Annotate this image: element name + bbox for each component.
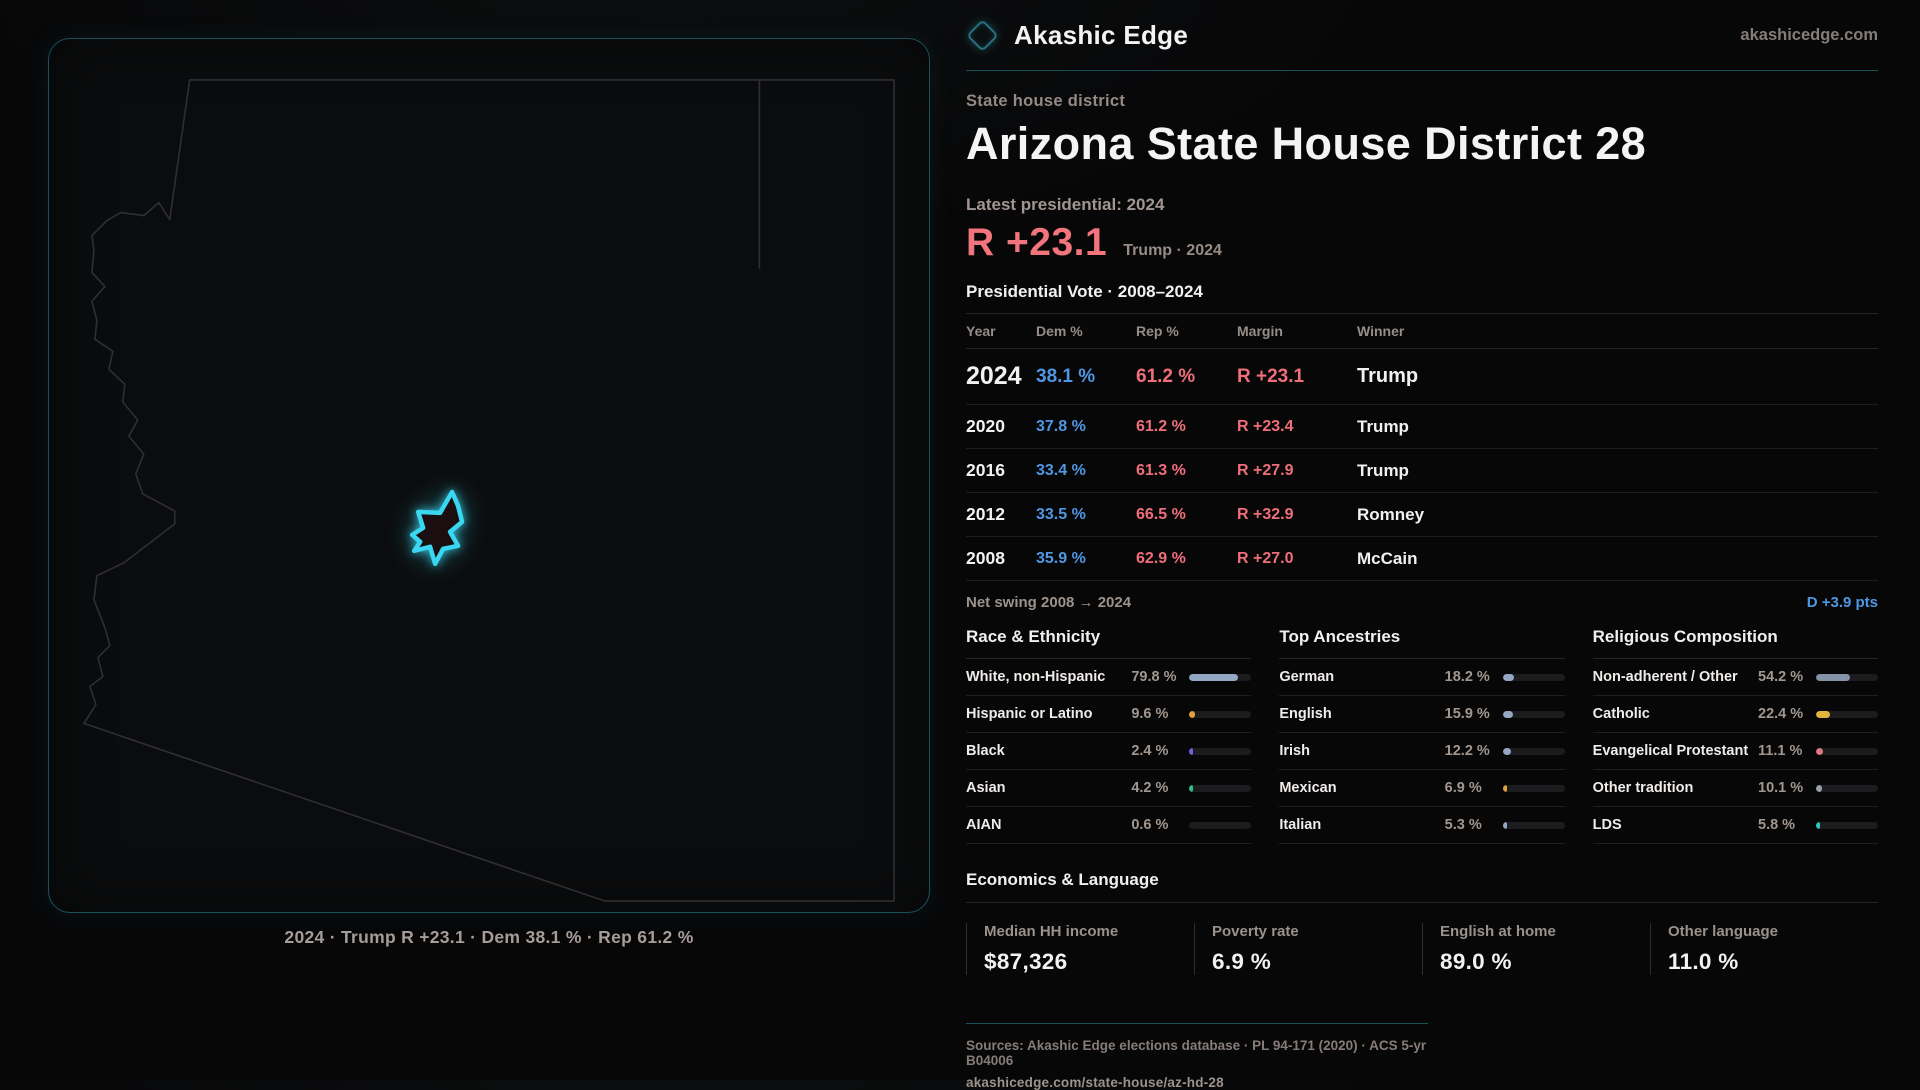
item-value: 9.6 %: [1131, 706, 1189, 722]
item-label: Mexican: [1279, 779, 1444, 798]
stat-bar-fill: [1503, 674, 1514, 681]
item-label: White, non-Hispanic: [966, 668, 1131, 687]
cell-margin: R +27.9: [1237, 462, 1357, 480]
stat-bar: [1503, 785, 1565, 792]
stat-value: 11.0 %: [1668, 949, 1878, 975]
item-label: Asian: [966, 779, 1131, 798]
section-title: Race & Ethnicity: [966, 627, 1251, 659]
col-header-year: Year: [966, 323, 1036, 339]
stat-label: Median HH income: [984, 923, 1194, 940]
list-item: Other tradition 10.1 %: [1593, 770, 1878, 807]
district-report: Akashic Edge akashicedge.com State house…: [966, 0, 1878, 1090]
stat-bar-fill: [1816, 785, 1822, 792]
table-row: 2016 33.4 % 61.3 % R +27.9 Trump: [966, 449, 1878, 493]
list-item: AIAN 0.6 %: [966, 807, 1251, 844]
brand-name: Akashic Edge: [1014, 20, 1188, 51]
item-label: AIAN: [966, 816, 1131, 835]
stat-value: $87,326: [984, 949, 1194, 975]
item-label: Other tradition: [1593, 779, 1758, 798]
stat-bar: [1189, 674, 1251, 681]
item-label: Catholic: [1593, 705, 1758, 724]
section-title: Top Ancestries: [1279, 627, 1564, 659]
cell-dem: 35.9 %: [1036, 550, 1136, 568]
economics-title: Economics & Language: [966, 870, 1878, 903]
religion-column: Religious Composition Non-adherent / Oth…: [1593, 627, 1878, 844]
list-item: Italian 5.3 %: [1279, 807, 1564, 844]
arizona-map: [49, 39, 929, 912]
item-value: 54.2 %: [1758, 669, 1816, 685]
list-item: LDS 5.8 %: [1593, 807, 1878, 844]
list-item: Hispanic or Latino 9.6 %: [966, 696, 1251, 733]
stat-bar-fill: [1503, 711, 1513, 718]
item-label: English: [1279, 705, 1444, 724]
race-ethnicity-column: Race & Ethnicity White, non-Hispanic 79.…: [966, 627, 1251, 844]
item-value: 10.1 %: [1758, 780, 1816, 796]
stat-poverty-rate: Poverty rate 6.9 %: [1194, 923, 1422, 975]
col-header-winner: Winner: [1357, 323, 1878, 339]
item-label: Black: [966, 742, 1131, 761]
stat-bar: [1503, 748, 1565, 755]
cell-dem: 33.5 %: [1036, 506, 1136, 524]
cell-year: 2024: [966, 362, 1036, 391]
list-item: Asian 4.2 %: [966, 770, 1251, 807]
list-item: Mexican 6.9 %: [1279, 770, 1564, 807]
kicker-label: State house district: [966, 92, 1878, 111]
list-item: German 18.2 %: [1279, 659, 1564, 696]
stat-median-income: Median HH income $87,326: [966, 923, 1194, 975]
cell-rep: 61.2 %: [1136, 418, 1237, 436]
list-item: Evangelical Protestant 11.1 %: [1593, 733, 1878, 770]
item-label: LDS: [1593, 816, 1758, 835]
stat-bar: [1189, 748, 1251, 755]
cell-rep: 61.3 %: [1136, 462, 1237, 480]
table-title: Presidential Vote · 2008–2024: [966, 282, 1878, 302]
list-item: Black 2.4 %: [966, 733, 1251, 770]
list-item: Irish 12.2 %: [1279, 733, 1564, 770]
district-28-shape[interactable]: [412, 492, 462, 564]
table-row: 2012 33.5 % 66.5 % R +32.9 Romney: [966, 493, 1878, 537]
ancestries-column: Top Ancestries German 18.2 % English 15.…: [1279, 627, 1564, 844]
item-value: 22.4 %: [1758, 706, 1816, 722]
stat-bar: [1816, 822, 1878, 829]
headline-margin: R +23.1 Trump · 2024: [966, 221, 1878, 265]
stat-bar-fill: [1816, 822, 1820, 829]
item-label: Hispanic or Latino: [966, 705, 1131, 724]
table-row: 2020 37.8 % 61.2 % R +23.4 Trump: [966, 405, 1878, 449]
table-row: 2024 38.1 % 61.2 % R +23.1 Trump: [966, 349, 1878, 405]
cell-margin: R +27.0: [1237, 550, 1357, 568]
stat-bar: [1816, 674, 1878, 681]
stat-bar: [1503, 822, 1565, 829]
stat-value: 89.0 %: [1440, 949, 1650, 975]
item-value: 15.9 %: [1445, 706, 1503, 722]
col-header-margin: Margin: [1237, 323, 1357, 339]
col-header-rep: Rep %: [1136, 323, 1237, 339]
margin-value: R +23.1: [966, 221, 1107, 265]
demographics-section: Race & Ethnicity White, non-Hispanic 79.…: [966, 627, 1878, 844]
brand-domain-link[interactable]: akashicedge.com: [1740, 26, 1878, 45]
cell-year: 2020: [966, 416, 1036, 437]
cell-margin: R +32.9: [1237, 506, 1357, 524]
item-label: Evangelical Protestant: [1593, 742, 1758, 761]
col-header-dem: Dem %: [1036, 323, 1136, 339]
item-value: 79.8 %: [1131, 669, 1189, 685]
cell-rep: 62.9 %: [1136, 550, 1237, 568]
district-map-panel: [48, 38, 930, 913]
cell-rep: 61.2 %: [1136, 366, 1237, 388]
item-value: 18.2 %: [1445, 669, 1503, 685]
cell-year: 2008: [966, 548, 1036, 569]
stat-bar: [1189, 785, 1251, 792]
net-swing-label: Net swing 2008 → 2024: [966, 594, 1131, 611]
stat-bar-fill: [1503, 748, 1511, 755]
cell-dem: 38.1 %: [1036, 366, 1136, 388]
stat-bar-fill: [1816, 674, 1850, 681]
table-header-row: Year Dem % Rep % Margin Winner: [966, 313, 1878, 349]
item-value: 2.4 %: [1131, 743, 1189, 759]
stat-bar: [1189, 711, 1251, 718]
stat-label: English at home: [1440, 923, 1650, 940]
stat-bar-fill: [1503, 822, 1507, 829]
item-value: 5.3 %: [1445, 817, 1503, 833]
cell-dem: 37.8 %: [1036, 418, 1136, 436]
item-value: 6.9 %: [1445, 780, 1503, 796]
stat-bar-fill: [1189, 711, 1195, 718]
item-label: German: [1279, 668, 1444, 687]
item-value: 5.8 %: [1758, 817, 1816, 833]
cell-winner: Trump: [1357, 417, 1878, 437]
item-value: 4.2 %: [1131, 780, 1189, 796]
stat-bar-fill: [1816, 748, 1823, 755]
table-row: 2008 35.9 % 62.9 % R +27.0 McCain: [966, 537, 1878, 581]
net-swing-value: D +3.9 pts: [1807, 594, 1878, 611]
stat-bar-fill: [1189, 748, 1193, 755]
cell-year: 2012: [966, 504, 1036, 525]
stat-bar-fill: [1189, 785, 1193, 792]
cell-rep: 66.5 %: [1136, 506, 1237, 524]
brand-header: Akashic Edge akashicedge.com: [966, 0, 1878, 71]
sources-text: Sources: Akashic Edge elections database…: [966, 1038, 1428, 1068]
item-value: 12.2 %: [1445, 743, 1503, 759]
map-caption: 2024 · Trump R +23.1 · Dem 38.1 % · Rep …: [48, 927, 930, 948]
list-item: Non-adherent / Other 54.2 %: [1593, 659, 1878, 696]
stat-bar-fill: [1503, 785, 1507, 792]
page-title: Arizona State House District 28: [966, 118, 1878, 170]
item-label: Non-adherent / Other: [1593, 668, 1758, 687]
cell-winner: McCain: [1357, 549, 1878, 569]
cell-winner: Trump: [1357, 365, 1878, 388]
stat-bar: [1503, 674, 1565, 681]
item-label: Irish: [1279, 742, 1444, 761]
cell-dem: 33.4 %: [1036, 462, 1136, 480]
list-item: Catholic 22.4 %: [1593, 696, 1878, 733]
item-value: 11.1 %: [1758, 743, 1816, 759]
stat-bar: [1816, 785, 1878, 792]
net-swing-row: Net swing 2008 → 2024 D +3.9 pts: [966, 581, 1878, 611]
cell-margin: R +23.4: [1237, 418, 1357, 436]
item-label: Italian: [1279, 816, 1444, 835]
stat-other-language: Other language 11.0 %: [1650, 923, 1878, 975]
stat-label: Poverty rate: [1212, 923, 1422, 940]
list-item: White, non-Hispanic 79.8 %: [966, 659, 1251, 696]
margin-note: Trump · 2024: [1123, 242, 1222, 260]
list-item: English 15.9 %: [1279, 696, 1564, 733]
section-title: Religious Composition: [1593, 627, 1878, 659]
cell-margin: R +23.1: [1237, 366, 1357, 388]
stat-value: 6.9 %: [1212, 949, 1422, 975]
stat-bar: [1189, 822, 1251, 829]
stat-bar: [1503, 711, 1565, 718]
stat-bar-fill: [1816, 711, 1830, 718]
diamond-icon: [966, 19, 999, 52]
item-value: 0.6 %: [1131, 817, 1189, 833]
stat-bar-fill: [1189, 674, 1238, 681]
arizona-state-outline: [84, 80, 894, 901]
stat-english-at-home: English at home 89.0 %: [1422, 923, 1650, 975]
latest-presidential-label: Latest presidential: 2024: [966, 195, 1878, 215]
economics-stats: Median HH income $87,326 Poverty rate 6.…: [966, 923, 1878, 975]
stat-bar: [1816, 711, 1878, 718]
cell-year: 2016: [966, 460, 1036, 481]
cell-winner: Trump: [1357, 461, 1878, 481]
stat-label: Other language: [1668, 923, 1878, 940]
permalink[interactable]: akashicedge.com/state-house/az-hd-28: [966, 1075, 1428, 1090]
stat-bar: [1816, 748, 1878, 755]
cell-winner: Romney: [1357, 505, 1878, 525]
